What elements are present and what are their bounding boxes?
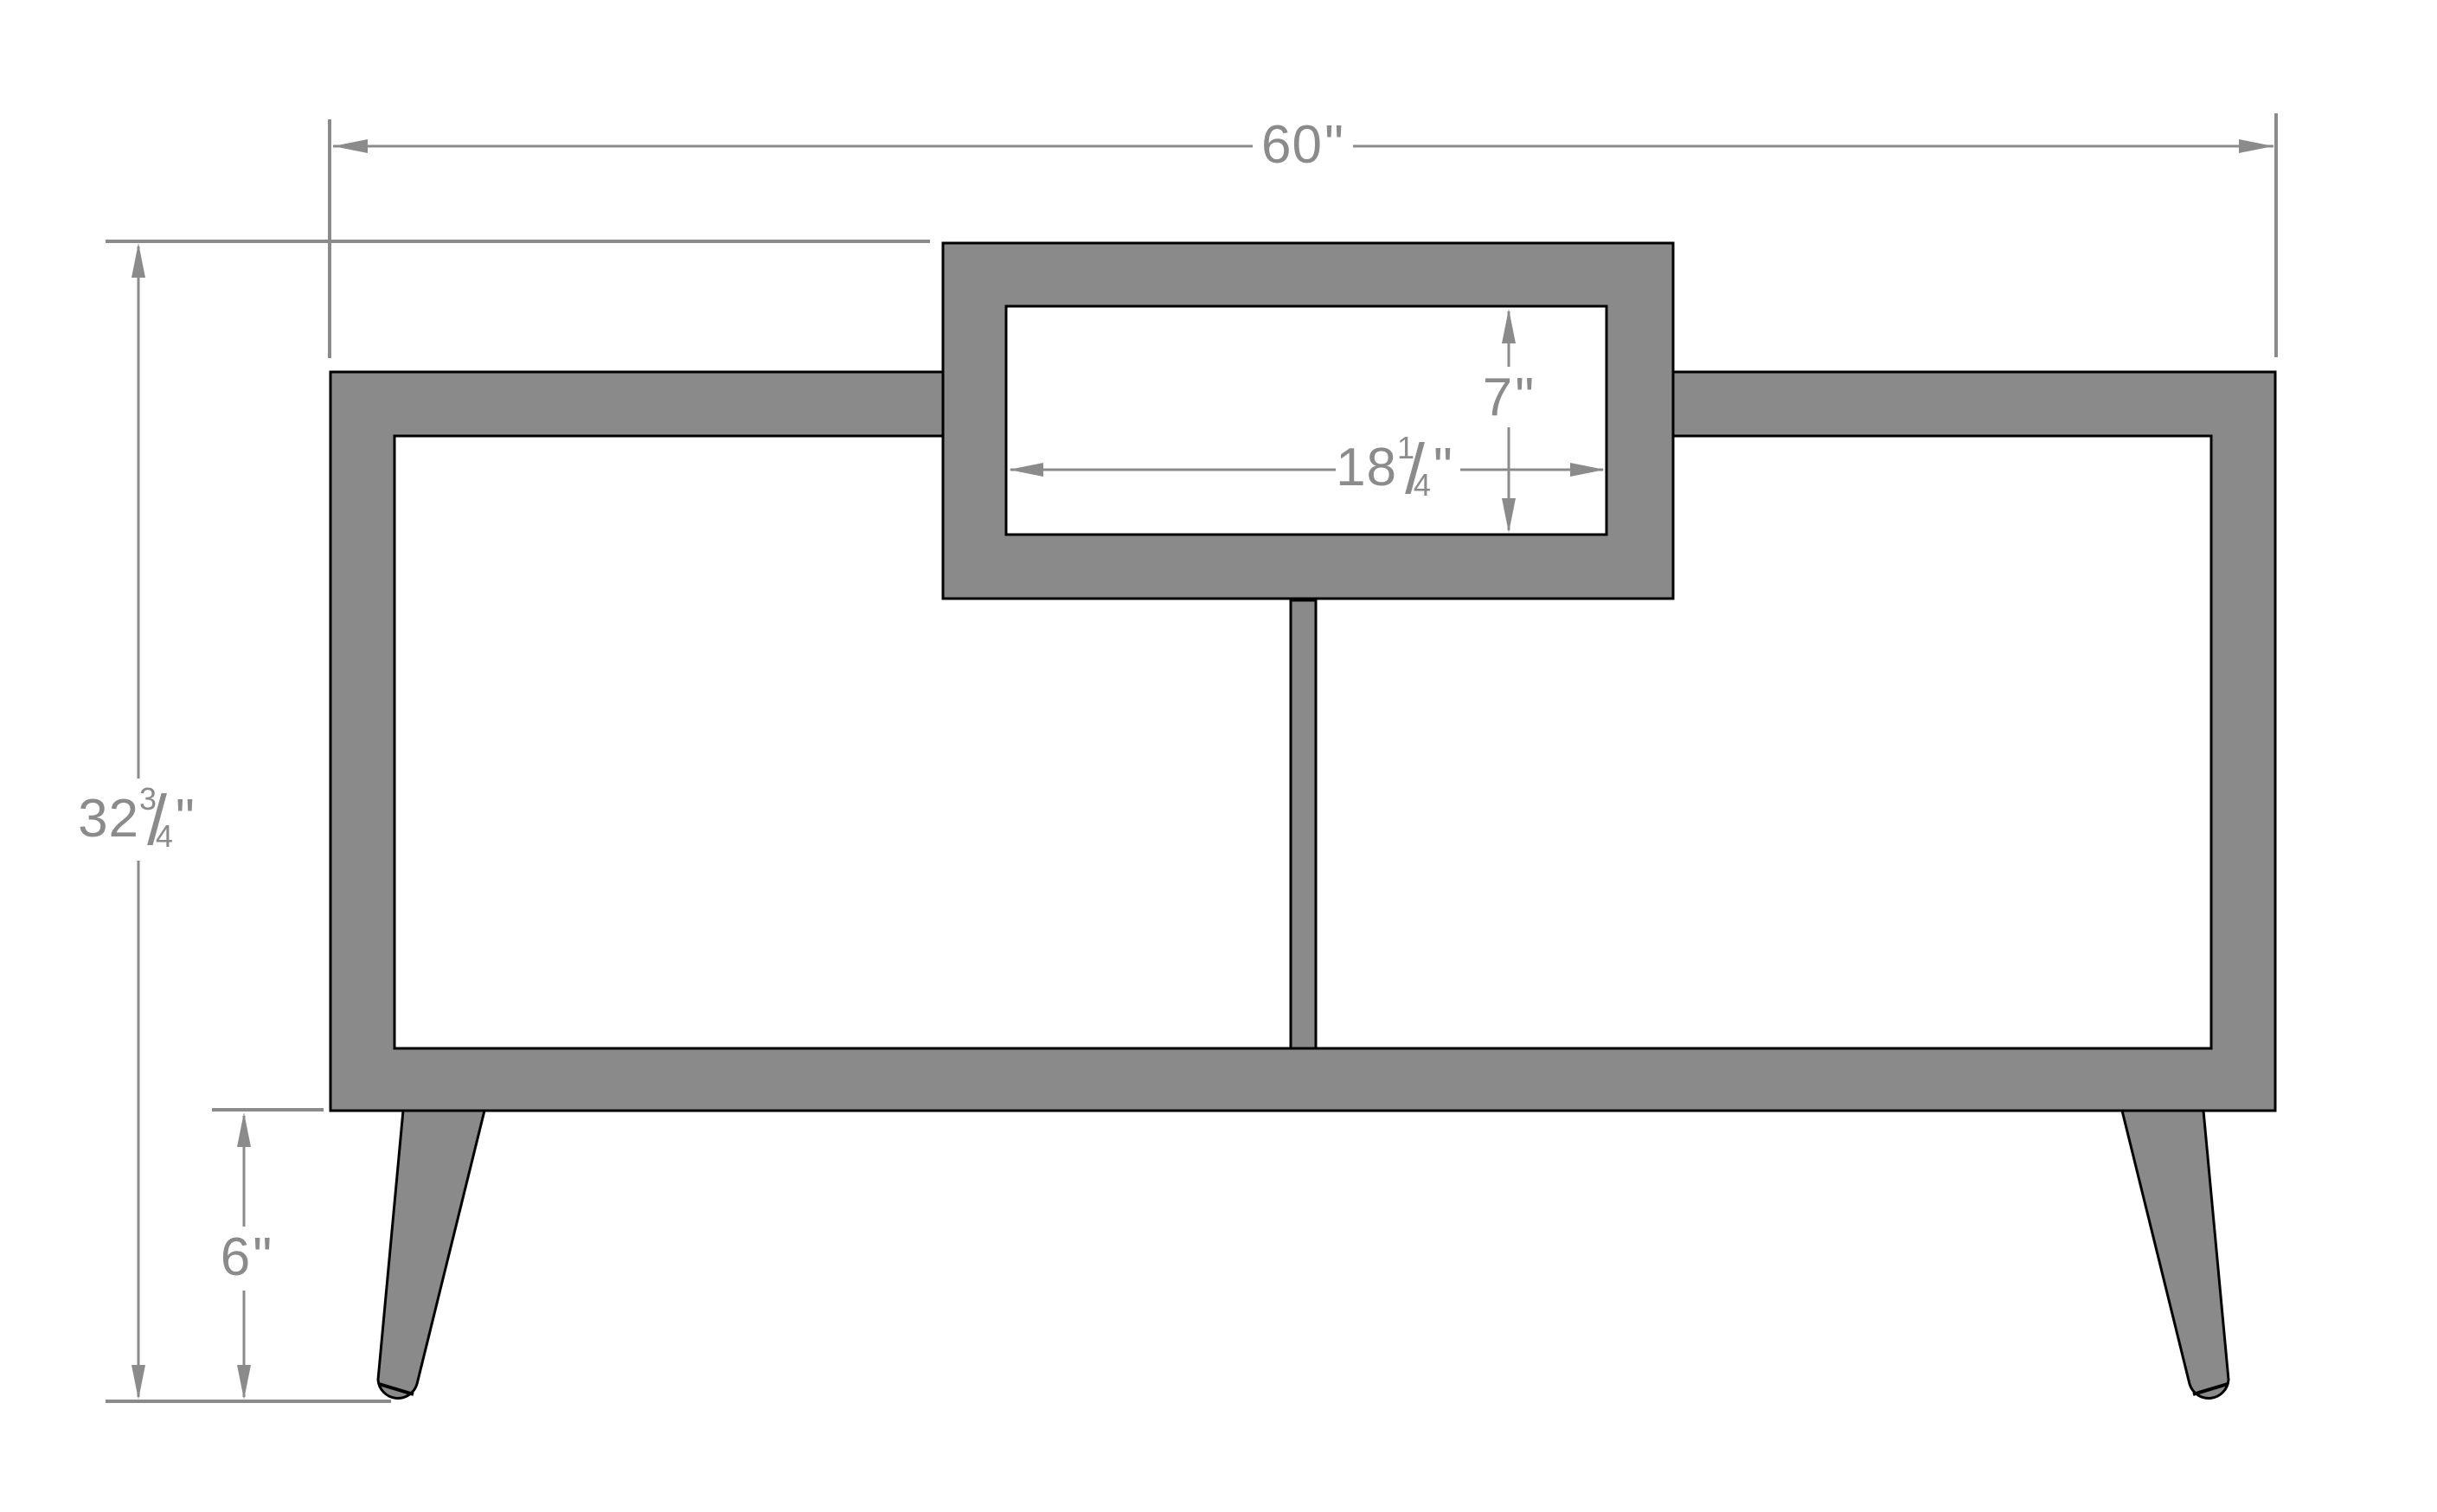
front-left-leg (378, 1111, 484, 1398)
leg-arrow-down-icon (237, 1365, 251, 1400)
center-divider (1291, 600, 1316, 1048)
cubby-height-value: 7 (1483, 368, 1513, 427)
cubby-width-unit: " (1433, 438, 1453, 497)
console-cabinet-diagram (0, 0, 2437, 1512)
leg-height-unit: " (253, 1227, 273, 1287)
furniture-dimension-drawing: 60" 323/4" 7" 181/4" 6" (0, 0, 2437, 1512)
width-arrow-right-icon (2239, 139, 2273, 153)
cubby-height-label: 7" (1483, 371, 1536, 425)
overall-height-frac-den: 4 (156, 818, 174, 854)
leg-arrow-up-icon (237, 1112, 251, 1147)
leg-height-label: 6" (221, 1231, 273, 1285)
cubby-height-unit: " (1515, 368, 1535, 427)
overall-height-label: 323/4" (78, 792, 196, 846)
cubby-width-frac-den: 4 (1414, 467, 1432, 503)
height-arrow-down-icon (131, 1365, 145, 1400)
overall-height-unit: " (176, 789, 196, 849)
overall-width-unit: " (1324, 115, 1344, 175)
overall-width-value: 60 (1261, 115, 1323, 175)
leg-height-value: 6 (221, 1227, 251, 1287)
overall-height-whole: 32 (78, 789, 139, 849)
cubby-width-whole: 18 (1336, 438, 1397, 497)
cubby-width-label: 181/4" (1336, 441, 1453, 495)
overall-width-label: 60" (1261, 119, 1344, 172)
height-arrow-up-icon (131, 243, 145, 278)
front-right-leg (2122, 1111, 2229, 1398)
width-arrow-left-icon (333, 139, 368, 153)
